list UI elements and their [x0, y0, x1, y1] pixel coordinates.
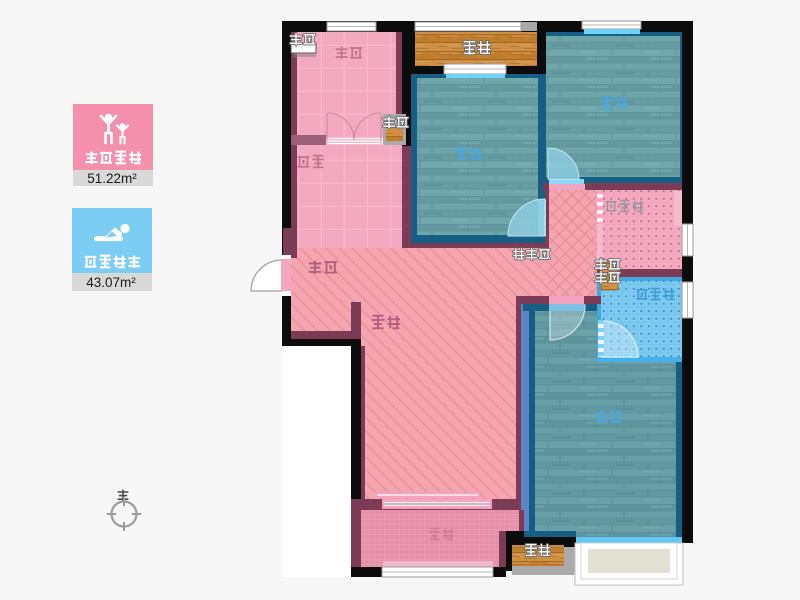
svg-text:51.22m²: 51.22m²: [87, 171, 137, 186]
svg-text:43.07m²: 43.07m²: [86, 275, 136, 290]
